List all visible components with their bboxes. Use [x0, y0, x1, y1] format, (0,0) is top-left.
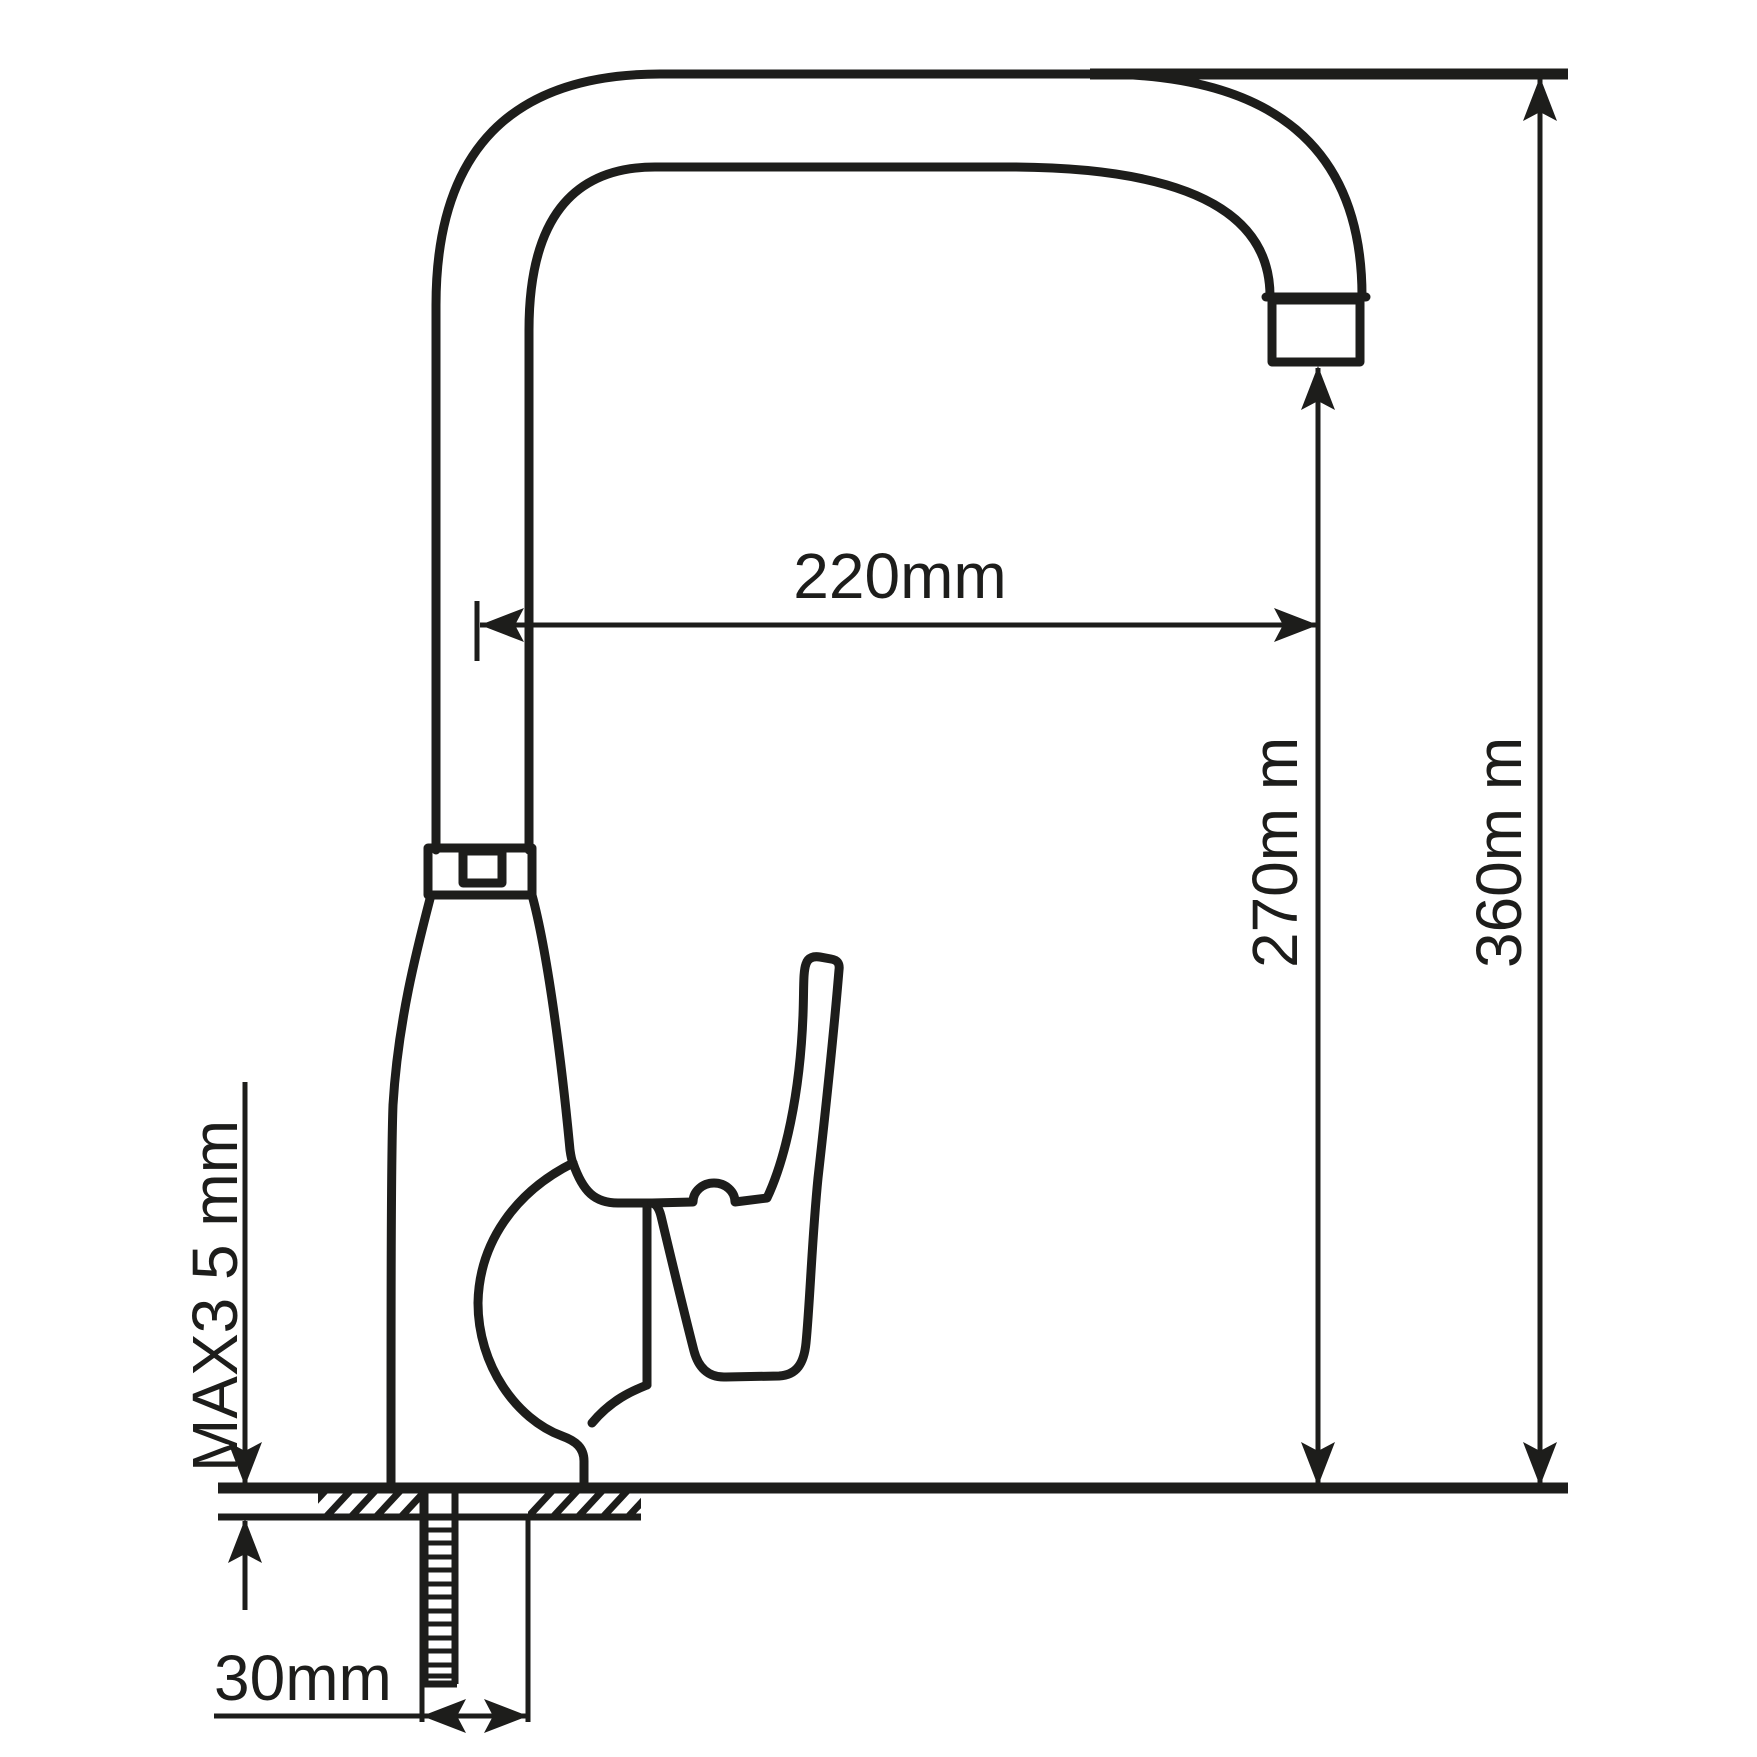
drawing-canvas: 220mm 270m m 360m m MAX3 5 mm — [0, 0, 1757, 1757]
outlet-height-label: 270m m — [1239, 737, 1311, 968]
overall-height-label: 360m m — [1463, 737, 1535, 968]
spout-reach-label: 220mm — [793, 540, 1006, 612]
max-thickness-label: MAX3 5 mm — [179, 1120, 251, 1472]
mounting-hole-label: 30mm — [214, 1642, 392, 1714]
faucet-dimension-diagram: 220mm 270m m 360m m MAX3 5 mm — [0, 0, 1757, 1757]
